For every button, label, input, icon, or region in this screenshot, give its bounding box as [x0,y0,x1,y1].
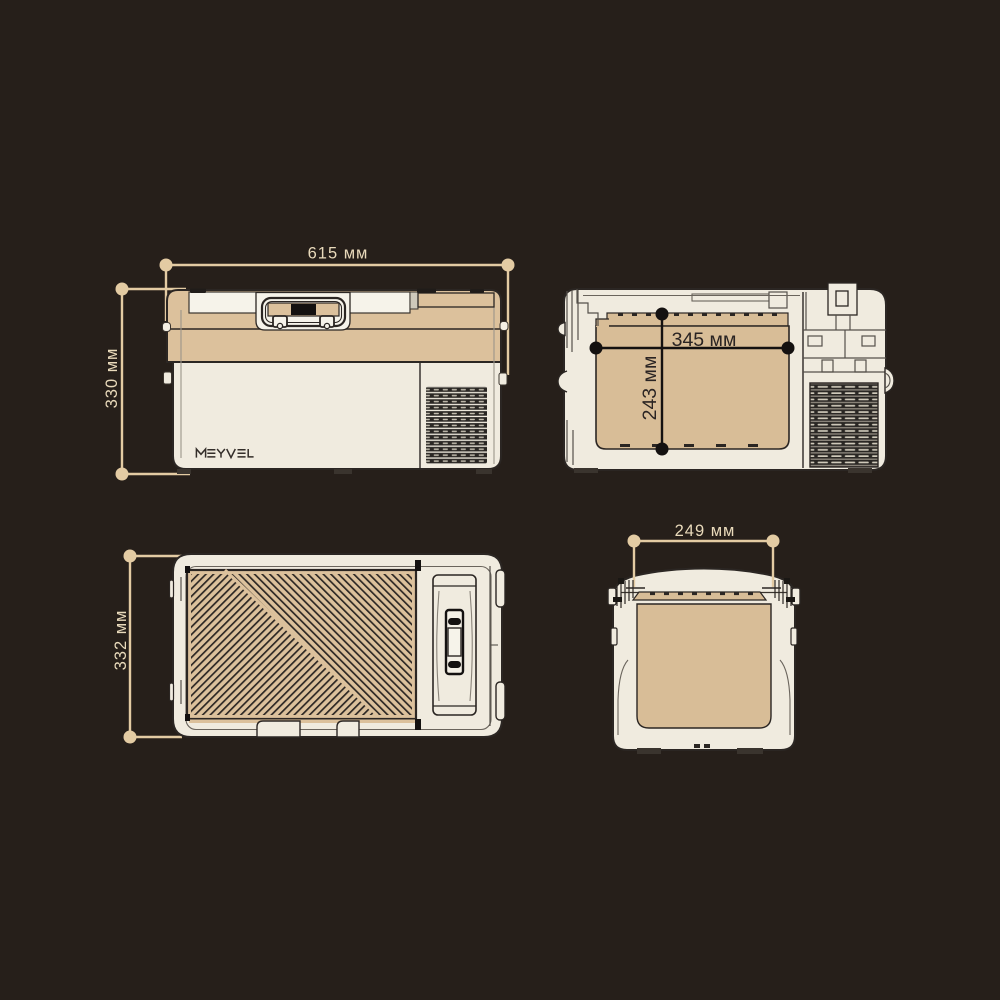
svg-text:332 мм: 332 мм [112,610,130,671]
svg-text:615 мм: 615 мм [308,245,369,263]
svg-text:345 мм: 345 мм [672,329,737,351]
svg-text:243 мм: 243 мм [639,356,661,421]
svg-text:330 мм: 330 мм [103,348,121,409]
svg-text:249 мм: 249 мм [675,522,736,540]
